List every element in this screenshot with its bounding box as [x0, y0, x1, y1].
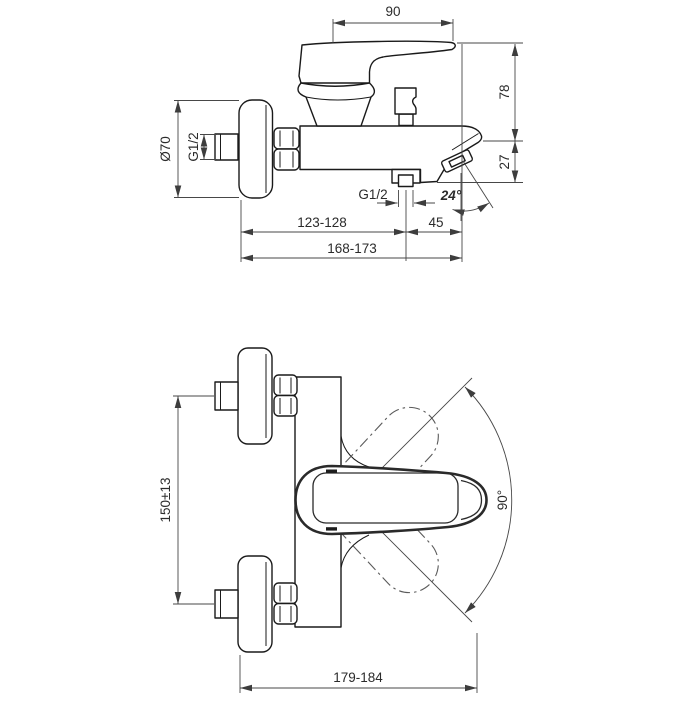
- dim-45-label: 45: [428, 215, 443, 230]
- escutcheon-plan-bottom: [238, 556, 272, 652]
- inlet-connector-side: [215, 134, 238, 160]
- dim-handle-length: 90: [333, 4, 453, 43]
- technical-drawing-page: 90 78 27 Ø70 G1/2 G1/2: [0, 0, 691, 714]
- angle-24-label: 24°: [440, 188, 462, 203]
- handle-tick-top: [326, 470, 337, 473]
- dim-overall-depth: 179-184: [240, 633, 477, 693]
- diverter-knob: [395, 88, 416, 126]
- faucet-body-side: [300, 126, 482, 183]
- shower-outlet-thread: [399, 175, 414, 187]
- angle-90-label: 90°: [495, 490, 510, 510]
- dim-27-label: 27: [497, 154, 512, 169]
- union-nuts-side: [274, 128, 299, 170]
- dim-123-128-label: 123-128: [297, 215, 347, 230]
- dim-179-184-label: 179-184: [333, 670, 383, 685]
- dim-shower-outlet-thread: G1/2: [358, 187, 435, 207]
- union-nuts-plan: [274, 375, 297, 624]
- dim-inlet-spacing: 150±13: [158, 396, 214, 604]
- top-view: 90° 150±13 179-184: [158, 348, 512, 693]
- handle-tick-bottom: [326, 527, 337, 530]
- dim-168-173-label: 168-173: [327, 241, 377, 256]
- dim-inlet-thread: G1/2: [186, 132, 217, 161]
- dim-150-label: 150±13: [158, 478, 173, 523]
- cartridge-bell: [298, 83, 374, 126]
- dim-90-label: 90: [385, 4, 400, 19]
- outlet-thread-label: G1/2: [358, 187, 387, 202]
- inlet-thread-label: G1/2: [186, 132, 201, 161]
- faucet-dimension-drawing: 90 78 27 Ø70 G1/2 G1/2: [0, 0, 691, 714]
- escutcheon-plan-top: [238, 348, 272, 444]
- dim-78-label: 78: [497, 84, 512, 99]
- escutcheon-side: [239, 100, 273, 198]
- lever-handle-side: [299, 41, 455, 83]
- dim-dia70-label: Ø70: [158, 136, 173, 162]
- side-view: 90 78 27 Ø70 G1/2 G1/2: [158, 4, 523, 262]
- inlet-connectors-plan: [215, 382, 238, 618]
